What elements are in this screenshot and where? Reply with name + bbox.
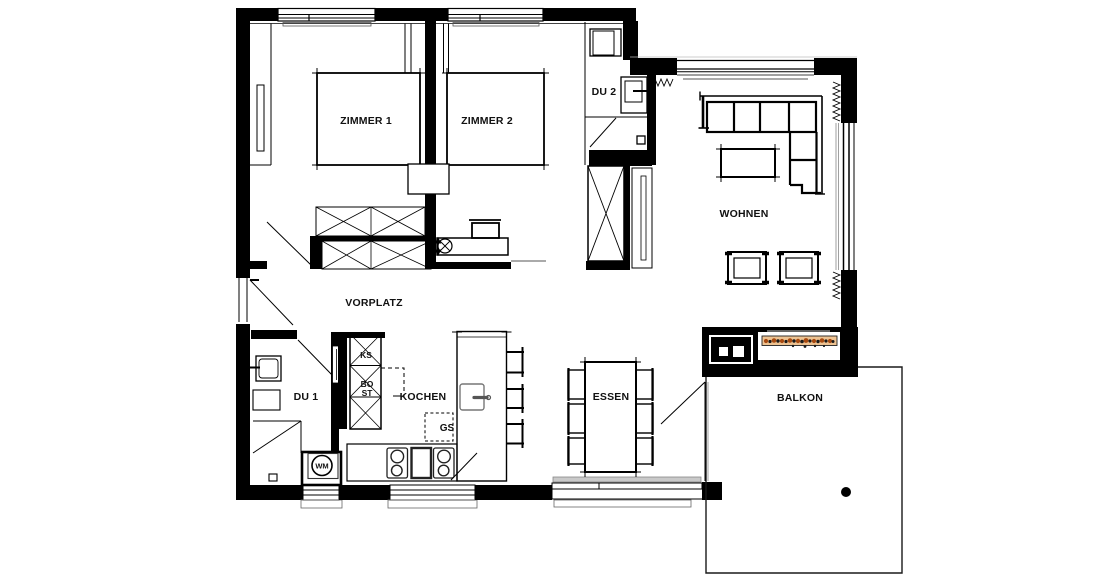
svg-text:WM: WM <box>315 462 328 471</box>
svg-text:KOCHEN: KOCHEN <box>400 391 447 403</box>
svg-text:ST: ST <box>362 388 374 398</box>
svg-text:VORPLATZ: VORPLATZ <box>345 297 403 309</box>
svg-text:KS: KS <box>360 350 372 360</box>
svg-text:BALKON: BALKON <box>777 392 823 404</box>
svg-text:DU 1: DU 1 <box>294 391 319 403</box>
svg-text:WOHNEN: WOHNEN <box>719 208 768 220</box>
svg-text:ZIMMER 2: ZIMMER 2 <box>461 115 513 127</box>
svg-text:ESSEN: ESSEN <box>593 391 630 403</box>
svg-text:ZIMMER 1: ZIMMER 1 <box>340 115 392 127</box>
svg-text:GS: GS <box>440 423 455 434</box>
svg-text:DU 2: DU 2 <box>592 86 617 98</box>
